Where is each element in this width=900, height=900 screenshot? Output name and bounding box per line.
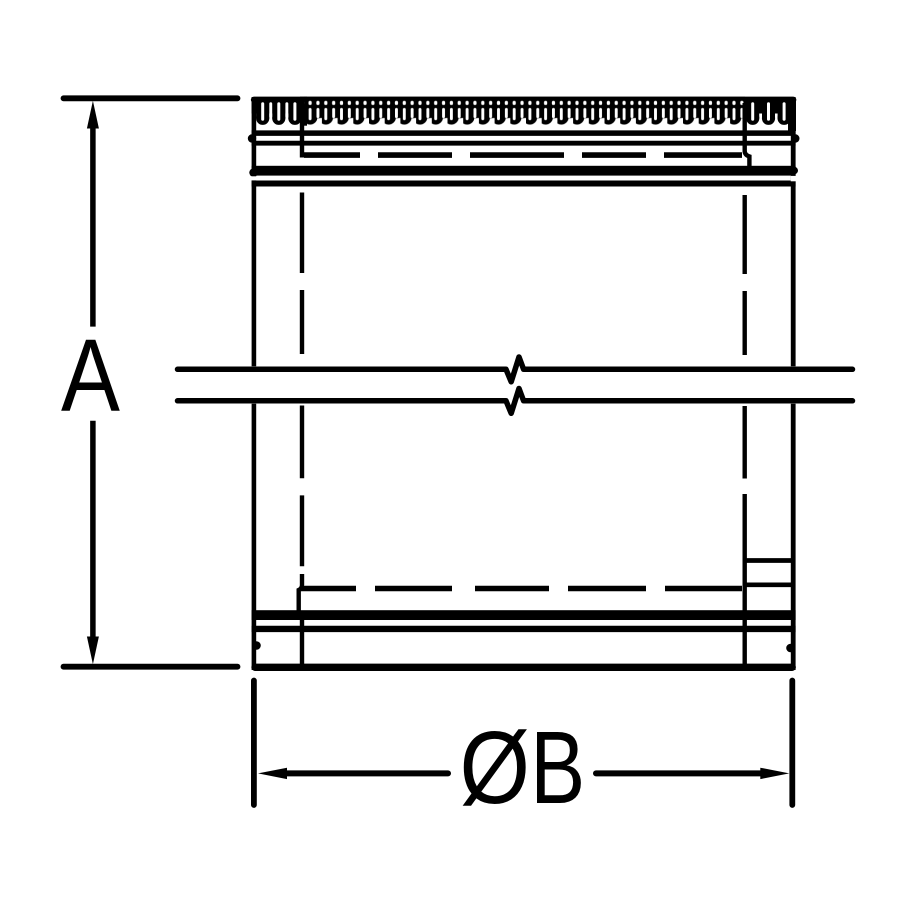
svg-text:Ø: Ø: [460, 710, 530, 826]
svg-text:B: B: [530, 710, 585, 825]
svg-text:A: A: [61, 319, 120, 434]
